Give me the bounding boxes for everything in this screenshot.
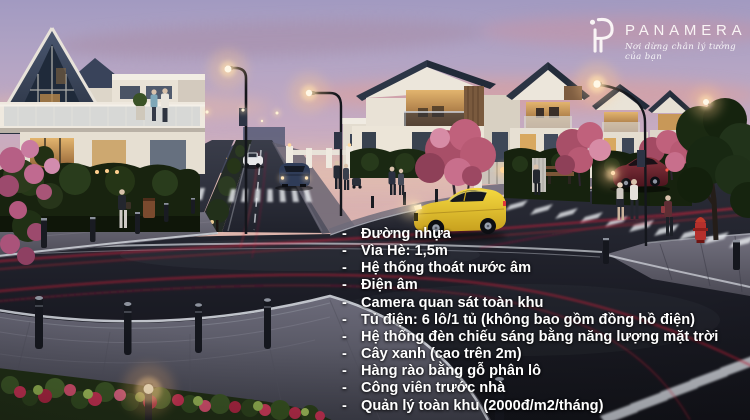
feature-item: -Hệ thống đèn chiếu sáng bằng năng lượng…: [342, 329, 718, 346]
promo-image: PANAMERA Nơi dừng chân lý tưởng của bạn …: [0, 0, 750, 420]
feature-item: -Công viên trước nhà: [342, 380, 718, 397]
feature-item: -Cây xanh (cao trên 2m): [342, 346, 718, 363]
feature-item: -Tủ điện: 6 lô/1 tủ (không bao gồm đồng …: [342, 312, 718, 329]
panamera-monogram-icon: [584, 12, 618, 58]
blue-sedan: [275, 163, 313, 191]
brand-logo: PANAMERA Nơi dừng chân lý tưởng của bạn: [584, 12, 750, 62]
feature-item: -Quản lý toàn khu (2000đ/m2/tháng): [342, 398, 718, 415]
brand-name: PANAMERA: [625, 23, 750, 38]
feature-list: -Đường nhựa -Vìa Hè: 1,5m -Hệ thống thoá…: [342, 226, 718, 415]
feature-item: -Điện âm: [342, 277, 718, 294]
brand-tagline: Nơi dừng chân lý tưởng của bạn: [625, 42, 750, 62]
feature-item: -Camera quan sát toàn khu: [342, 295, 718, 312]
feature-item: -Đường nhựa: [342, 226, 718, 243]
feature-item: -Hệ thống thoát nước âm: [342, 260, 718, 277]
feature-item: -Hàng rào bằng gỗ phân lô: [342, 363, 718, 380]
feature-item: -Vìa Hè: 1,5m: [342, 243, 718, 260]
